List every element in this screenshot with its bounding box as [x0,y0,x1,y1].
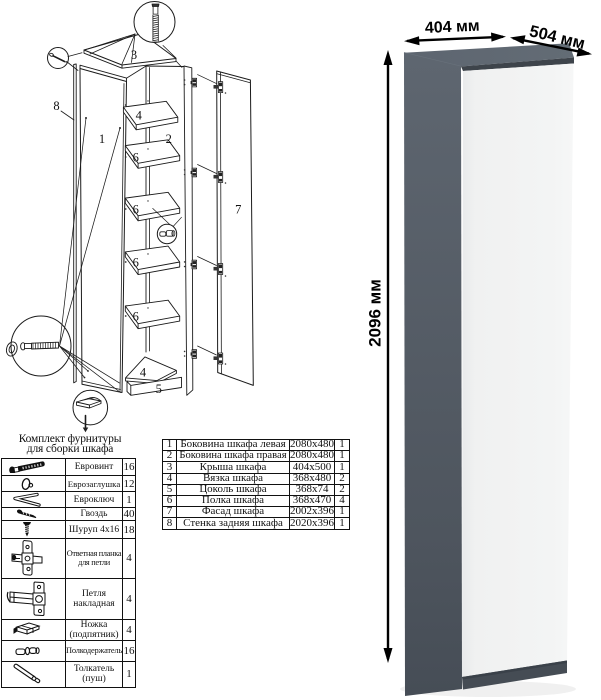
svg-text:1: 1 [99,132,105,146]
svg-text:2: 2 [166,132,172,146]
svg-text:7: 7 [235,202,241,216]
svg-text:6: 6 [133,310,139,324]
svg-text:3: 3 [131,48,137,62]
svg-text:6: 6 [133,151,139,165]
svg-text:6: 6 [133,256,139,270]
svg-text:5: 5 [156,382,162,396]
svg-text:4: 4 [136,109,143,123]
svg-text:2096 мм: 2096 мм [366,279,385,347]
svg-text:404 мм: 404 мм [425,18,481,37]
svg-text:8: 8 [53,99,59,113]
svg-text:4: 4 [140,365,147,379]
svg-text:6: 6 [133,203,139,217]
